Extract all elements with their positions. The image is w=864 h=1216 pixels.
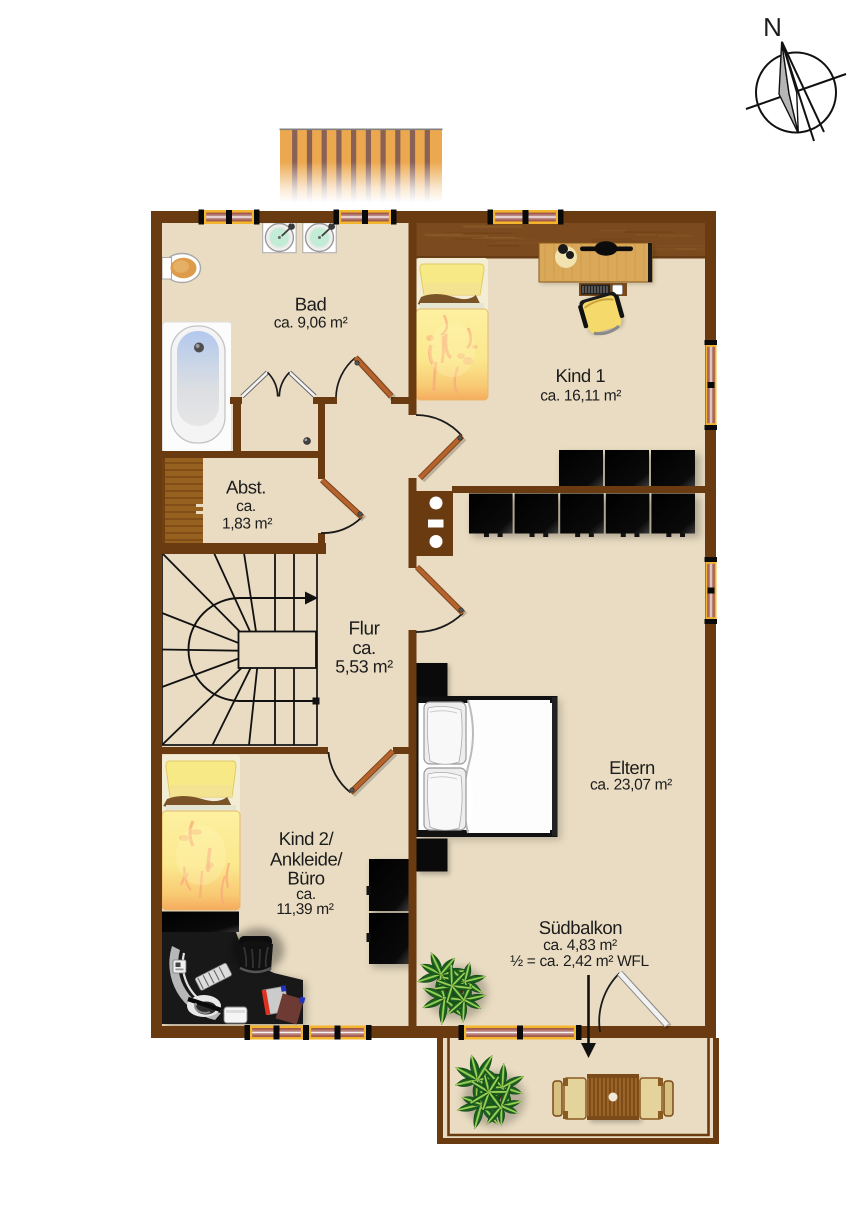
svg-text:Bad: Bad bbox=[295, 294, 327, 315]
svg-text:½ = ca. 2,42 m² WFL: ½ = ca. 2,42 m² WFL bbox=[510, 953, 649, 970]
svg-text:ca. 4,83 m²: ca. 4,83 m² bbox=[543, 937, 617, 954]
svg-text:ca. 23,07 m²: ca. 23,07 m² bbox=[590, 777, 672, 794]
svg-text:ca.: ca. bbox=[352, 637, 375, 658]
svg-text:ca. 9,06 m²: ca. 9,06 m² bbox=[274, 315, 348, 332]
svg-text:Kind 2/: Kind 2/ bbox=[279, 828, 335, 849]
svg-text:Ankleide/: Ankleide/ bbox=[270, 849, 343, 870]
svg-text:Südbalkon: Südbalkon bbox=[539, 917, 623, 938]
svg-text:1,83 m²: 1,83 m² bbox=[222, 516, 272, 533]
svg-text:ca. 16,11 m²: ca. 16,11 m² bbox=[540, 387, 621, 404]
svg-text:Kind 1: Kind 1 bbox=[556, 365, 606, 386]
svg-text:Abst.: Abst. bbox=[226, 477, 266, 498]
svg-text:11,39 m²: 11,39 m² bbox=[276, 901, 333, 918]
svg-text:5,53 m²: 5,53 m² bbox=[335, 657, 393, 677]
svg-text:N: N bbox=[763, 12, 782, 42]
svg-text:Eltern: Eltern bbox=[609, 757, 655, 778]
svg-text:ca.: ca. bbox=[236, 498, 256, 515]
